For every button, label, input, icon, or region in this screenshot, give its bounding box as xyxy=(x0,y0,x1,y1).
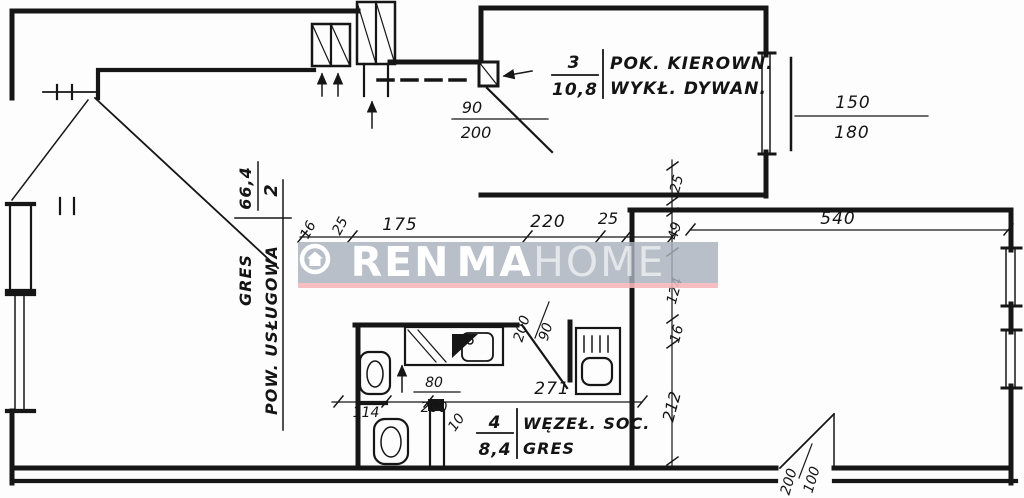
door-leaf xyxy=(487,88,552,152)
room-floor: GRES xyxy=(236,254,255,306)
dim-label: 25 xyxy=(329,214,352,237)
room-floor: GRES xyxy=(523,439,575,458)
dimension-labels: 16 25 175 220 25 25 49 124 16 212 540 15… xyxy=(297,93,871,497)
room-area: 8,4 xyxy=(478,440,511,460)
dim-label: 200 xyxy=(461,123,492,142)
watermark-brand-right: MA xyxy=(456,242,533,283)
door-leaf xyxy=(780,414,834,468)
room-number: 4 xyxy=(488,413,502,433)
dim-label: 540 xyxy=(820,209,855,229)
dim-label: 49 xyxy=(665,220,685,241)
floor-plan-scan: 16 25 175 220 25 25 49 124 16 212 540 15… xyxy=(0,0,1024,498)
door-leaf xyxy=(12,100,88,200)
watermark: REN MA HOME xyxy=(298,242,718,283)
dim-label: 90 xyxy=(462,98,482,117)
watermark-accent-line xyxy=(298,283,718,288)
dim-label: 114 xyxy=(353,405,380,421)
room-area: 10,8 xyxy=(552,80,598,100)
dim-label: 16 xyxy=(667,323,687,344)
counter-sink-icon xyxy=(402,327,503,392)
dim-label: 220 xyxy=(530,212,565,232)
dim-label: 10 xyxy=(445,411,468,435)
dim-label: 25 xyxy=(667,173,687,194)
watermark-brand-left: REN xyxy=(351,242,451,283)
toilet-icon xyxy=(360,352,390,394)
room-label-2: 2 POW. USŁUGOWA 66,4 GRES xyxy=(235,162,291,430)
dim-label: 212 xyxy=(659,389,685,423)
vent-shafts xyxy=(312,2,395,128)
dim-label: 80 xyxy=(425,375,443,391)
leader-arrow-icon xyxy=(504,71,532,76)
dim-label: 25 xyxy=(598,209,618,228)
room-label-4: 4 8,4 WĘZEŁ. SOC. GRES xyxy=(477,409,650,460)
room-number: 2 xyxy=(261,183,282,197)
shaft-icon xyxy=(312,24,350,66)
dim-label: 175 xyxy=(382,215,417,235)
watermark-brand-suffix: HOME xyxy=(533,242,665,283)
dim-label: 180 xyxy=(834,123,869,143)
dim-label: 90 xyxy=(536,321,557,343)
dim-label: 200 xyxy=(511,314,534,344)
room-area: 66,4 xyxy=(236,166,255,209)
washbasin-icon xyxy=(576,328,620,394)
room-name: WĘZEŁ. SOC. xyxy=(523,414,650,433)
room-name: POK. KIEROWN. xyxy=(610,54,774,74)
shaft-icon xyxy=(357,2,395,96)
toilet-icon xyxy=(374,419,408,464)
dim-label: 271 xyxy=(534,379,569,399)
dim-label: 200 xyxy=(778,467,801,497)
dim-label: 150 xyxy=(835,93,870,113)
room-number: 3 xyxy=(568,53,581,73)
room-name: POW. USŁUGOWA xyxy=(262,245,281,415)
dim-label: 100 xyxy=(801,465,824,495)
dim-label: 200 xyxy=(421,400,448,416)
room-label-3: 3 10,8 POK. KIEROWN. WYKŁ. DYWAN. xyxy=(552,50,774,100)
room-floor: WYKŁ. DYWAN. xyxy=(610,79,767,99)
